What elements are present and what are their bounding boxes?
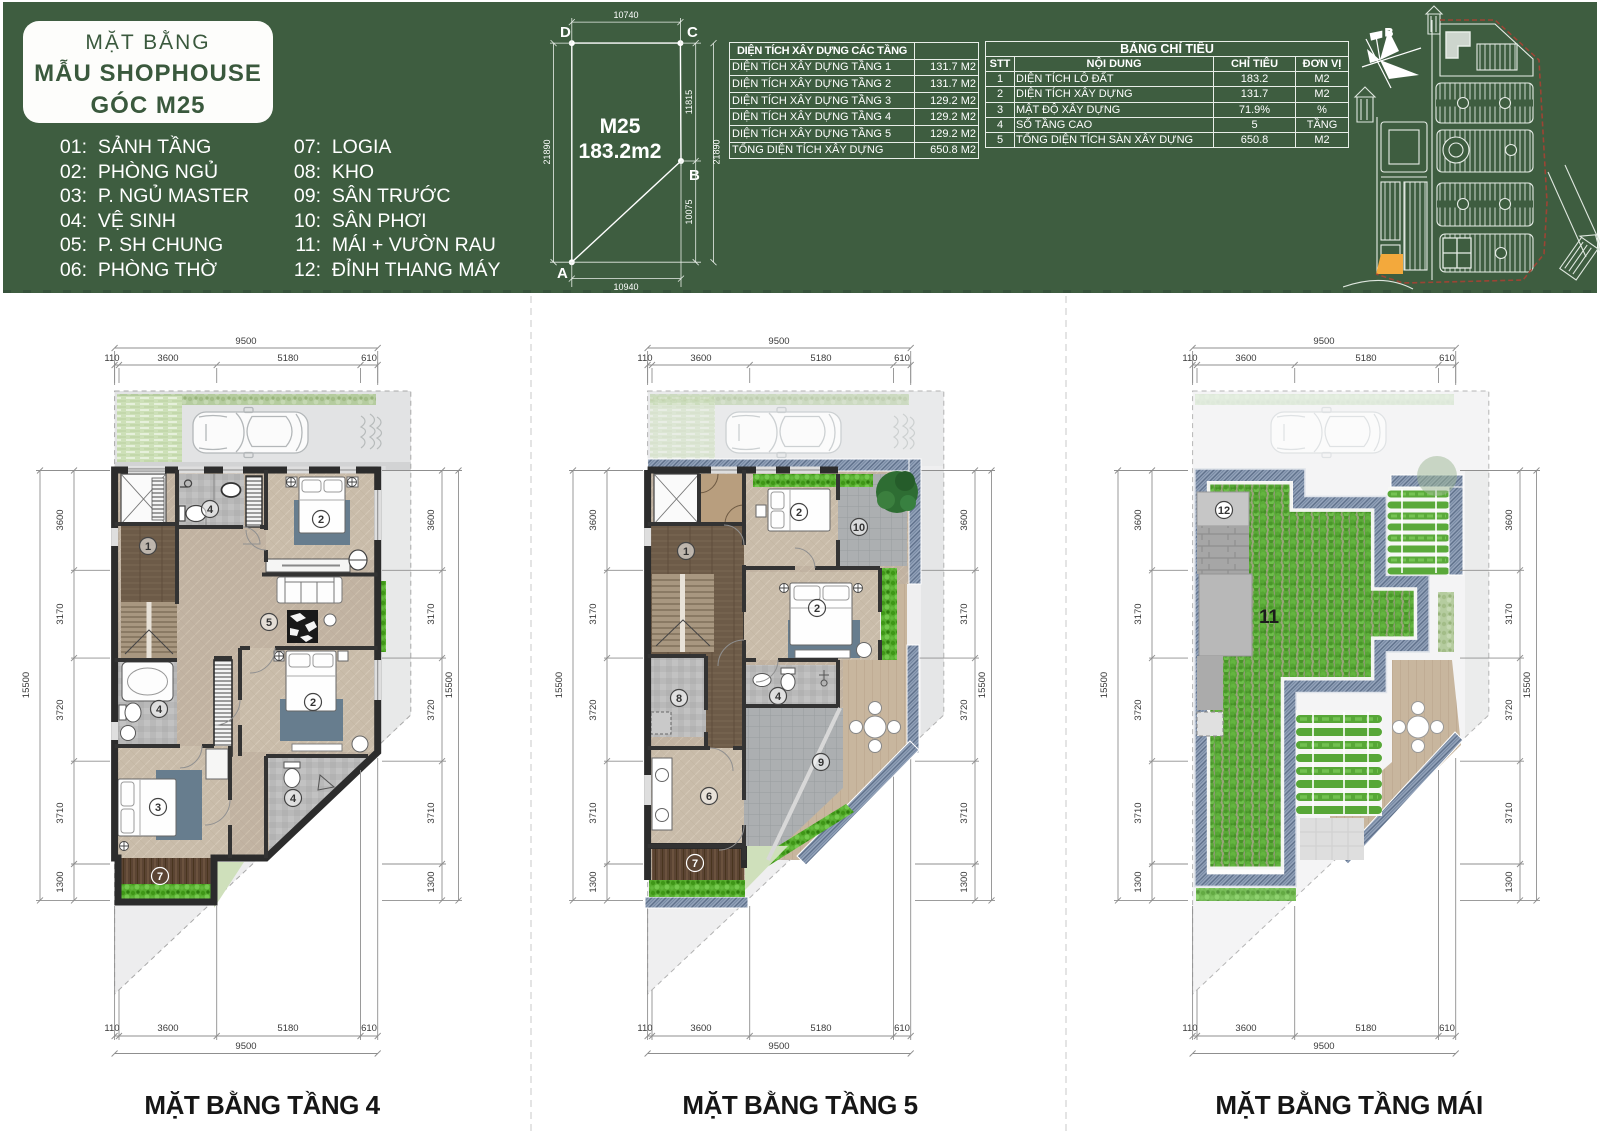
svg-text:7: 7 [157,871,163,883]
svg-text:11: 11 [1259,607,1280,628]
svg-text:1: 1 [145,541,151,553]
svg-text:1: 1 [683,546,689,558]
svg-text:4: 4 [207,504,214,516]
svg-text:2: 2 [310,697,316,709]
svg-text:2: 2 [814,603,820,615]
svg-text:M25: M25 [600,115,641,138]
svg-text:10075: 10075 [684,199,694,224]
svg-text:11815: 11815 [684,90,694,114]
svg-text:2: 2 [318,514,324,526]
svg-text:MẶT BẰNG TẦNG 5: MẶT BẰNG TẦNG 5 [682,1090,917,1120]
svg-text:9: 9 [818,757,824,769]
svg-text:C: C [687,24,698,41]
svg-text:2: 2 [796,507,802,519]
svg-text:B: B [1385,27,1393,39]
svg-text:D: D [560,24,571,41]
svg-text:5: 5 [266,617,272,629]
svg-text:4: 4 [775,691,782,703]
svg-text:10: 10 [853,522,865,534]
svg-text:MẶT BẰNG TẦNG MÁI: MẶT BẰNG TẦNG MÁI [1215,1090,1482,1120]
svg-text:MẶT BẰNG TẦNG 4: MẶT BẰNG TẦNG 4 [144,1090,380,1120]
svg-text:7: 7 [692,858,698,870]
svg-text:B: B [689,167,700,184]
svg-text:3: 3 [155,802,161,814]
svg-text:6: 6 [706,791,712,803]
svg-text:8: 8 [676,693,682,705]
svg-text:A: A [557,265,568,282]
svg-text:12: 12 [1218,505,1230,517]
svg-text:183.2m2: 183.2m2 [579,140,662,163]
svg-text:21890: 21890 [543,139,552,164]
svg-text:10740: 10740 [613,10,638,20]
svg-text:4: 4 [156,704,163,716]
svg-text:4: 4 [290,793,297,805]
svg-text:21890: 21890 [712,139,722,164]
